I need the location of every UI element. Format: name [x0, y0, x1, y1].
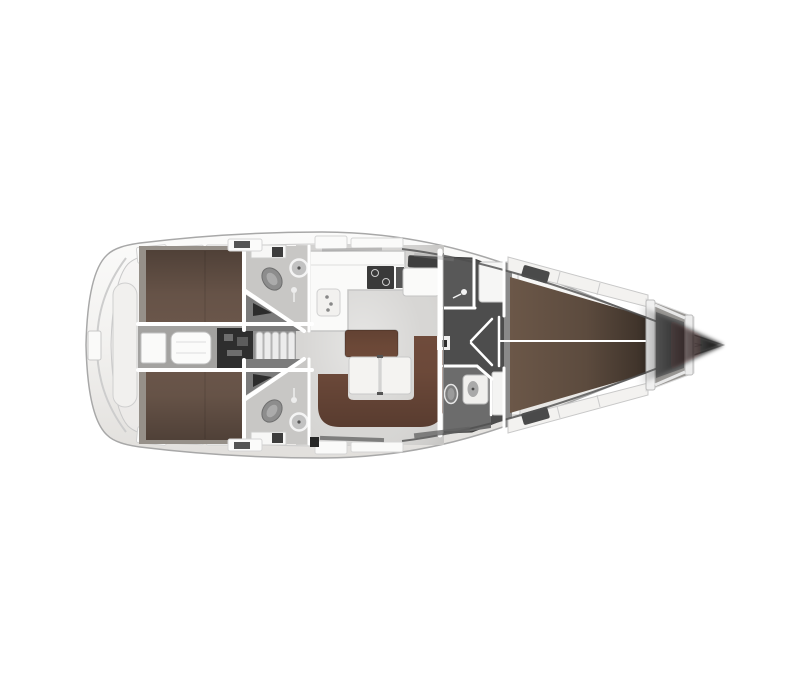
engine-part — [227, 350, 242, 356]
settee-cushion — [349, 357, 379, 394]
yacht-floor-plan-image — [0, 0, 800, 700]
cushion-latch — [377, 355, 383, 358]
aft-cabin-starboard — [139, 364, 245, 444]
aft-cabin-port — [139, 246, 245, 326]
deck-box-slat — [234, 241, 250, 248]
transom-door — [113, 283, 137, 407]
settee-cushion — [381, 357, 411, 394]
toilet-seat — [448, 388, 455, 400]
berth-shading — [146, 250, 242, 324]
liferaft-locker — [171, 332, 211, 364]
deck-hatch-white — [351, 442, 403, 452]
chart-table-top — [403, 268, 439, 296]
deck-hatch-white — [315, 441, 347, 454]
forward-cabin — [504, 257, 648, 433]
aft-head-port — [243, 245, 309, 331]
sink-drain — [297, 420, 300, 423]
sink-drain — [472, 388, 475, 391]
deck-fitting — [310, 437, 319, 447]
stove — [367, 266, 394, 289]
storage-box — [141, 333, 166, 363]
saloon-table-shading — [345, 330, 398, 357]
faucet-dot — [325, 295, 329, 299]
transom-step — [88, 331, 101, 360]
berth-shading — [146, 366, 242, 440]
shower-stall-floor — [444, 258, 474, 307]
sink-drain — [297, 266, 300, 269]
deck-box-slat — [234, 442, 250, 449]
engine-part — [224, 334, 233, 341]
faucet-dot — [326, 308, 330, 312]
engine-part — [237, 337, 248, 346]
shower-head — [291, 287, 297, 293]
deck-hatch-white — [315, 236, 347, 249]
shower-head — [291, 397, 297, 403]
faucet-dot — [329, 302, 333, 306]
deck-hatch-white — [351, 238, 403, 248]
counter-hatch — [272, 433, 283, 443]
galley-sink — [317, 289, 340, 316]
floor-plan-svg — [0, 0, 800, 700]
counter-hatch — [272, 247, 283, 257]
shower-head — [461, 289, 467, 295]
cushion-latch — [377, 392, 383, 395]
